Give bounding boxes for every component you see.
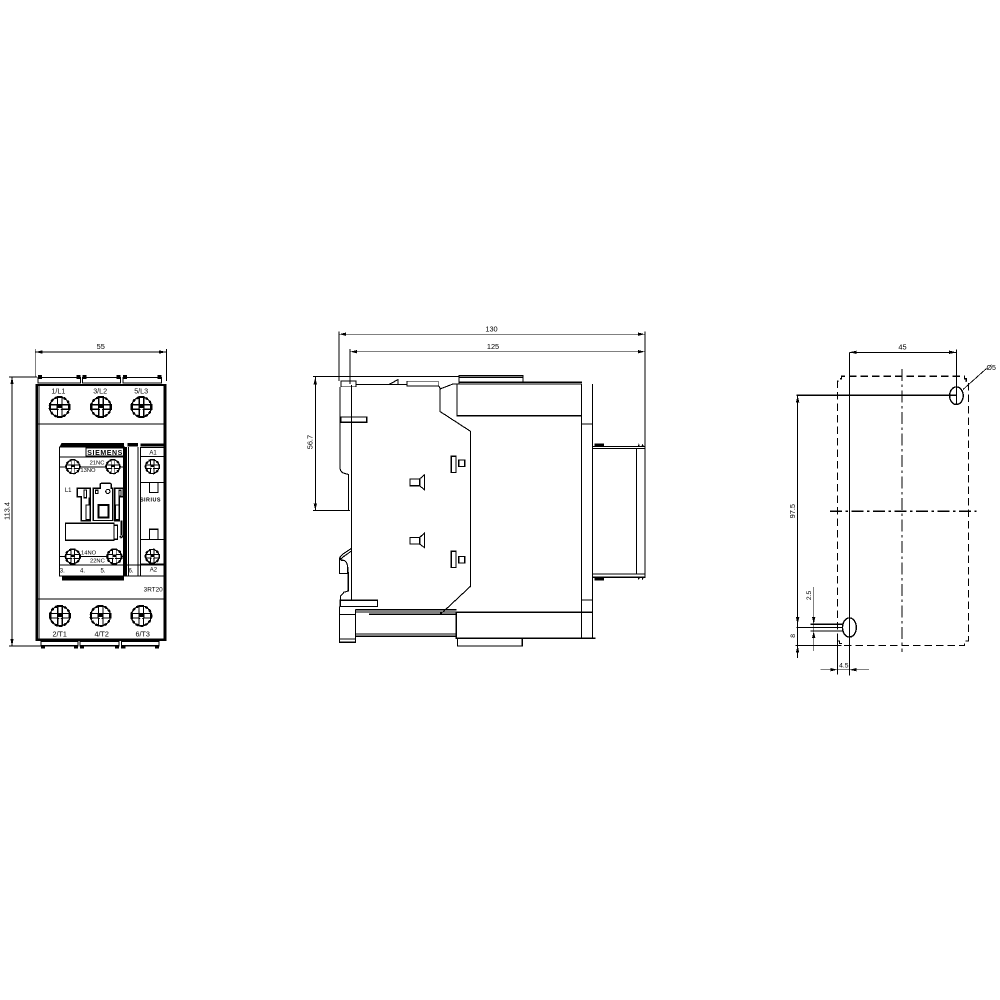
svg-text:6/T3: 6/T3 [136, 630, 150, 639]
svg-text:56.7: 56.7 [305, 435, 314, 449]
svg-text:A2: A2 [150, 568, 158, 574]
svg-text:14NO: 14NO [81, 550, 97, 556]
svg-text:2/T1: 2/T1 [53, 630, 67, 639]
svg-text:5.: 5. [100, 569, 105, 575]
svg-text:125: 125 [487, 342, 499, 351]
svg-text:L1: L1 [65, 488, 72, 494]
svg-text:97.5: 97.5 [788, 504, 797, 518]
svg-text:3/L2: 3/L2 [93, 386, 107, 395]
svg-text:6.: 6. [128, 569, 133, 575]
svg-text:2.5: 2.5 [806, 590, 813, 600]
svg-text:A1: A1 [149, 451, 157, 457]
svg-text:55: 55 [97, 342, 105, 351]
svg-text:Ø5: Ø5 [987, 365, 996, 372]
svg-text:4.5: 4.5 [839, 663, 849, 670]
svg-text:4.: 4. [80, 569, 85, 575]
svg-text:5/L3: 5/L3 [134, 386, 148, 395]
svg-text:1/L1: 1/L1 [51, 386, 65, 395]
svg-text:SIEMENS: SIEMENS [87, 450, 122, 457]
svg-text:8: 8 [790, 634, 797, 638]
svg-text:3.: 3. [60, 569, 65, 575]
svg-text:13NO: 13NO [80, 468, 96, 474]
svg-text:21NC: 21NC [90, 461, 105, 467]
svg-text:45: 45 [898, 343, 906, 352]
svg-text:SIRIUS: SIRIUS [140, 498, 161, 504]
svg-text:22NC: 22NC [90, 558, 105, 564]
svg-text:130: 130 [485, 325, 497, 334]
svg-text:3RT20: 3RT20 [144, 587, 164, 594]
svg-text:4/T2: 4/T2 [95, 630, 109, 639]
svg-text:113.4: 113.4 [2, 502, 11, 520]
